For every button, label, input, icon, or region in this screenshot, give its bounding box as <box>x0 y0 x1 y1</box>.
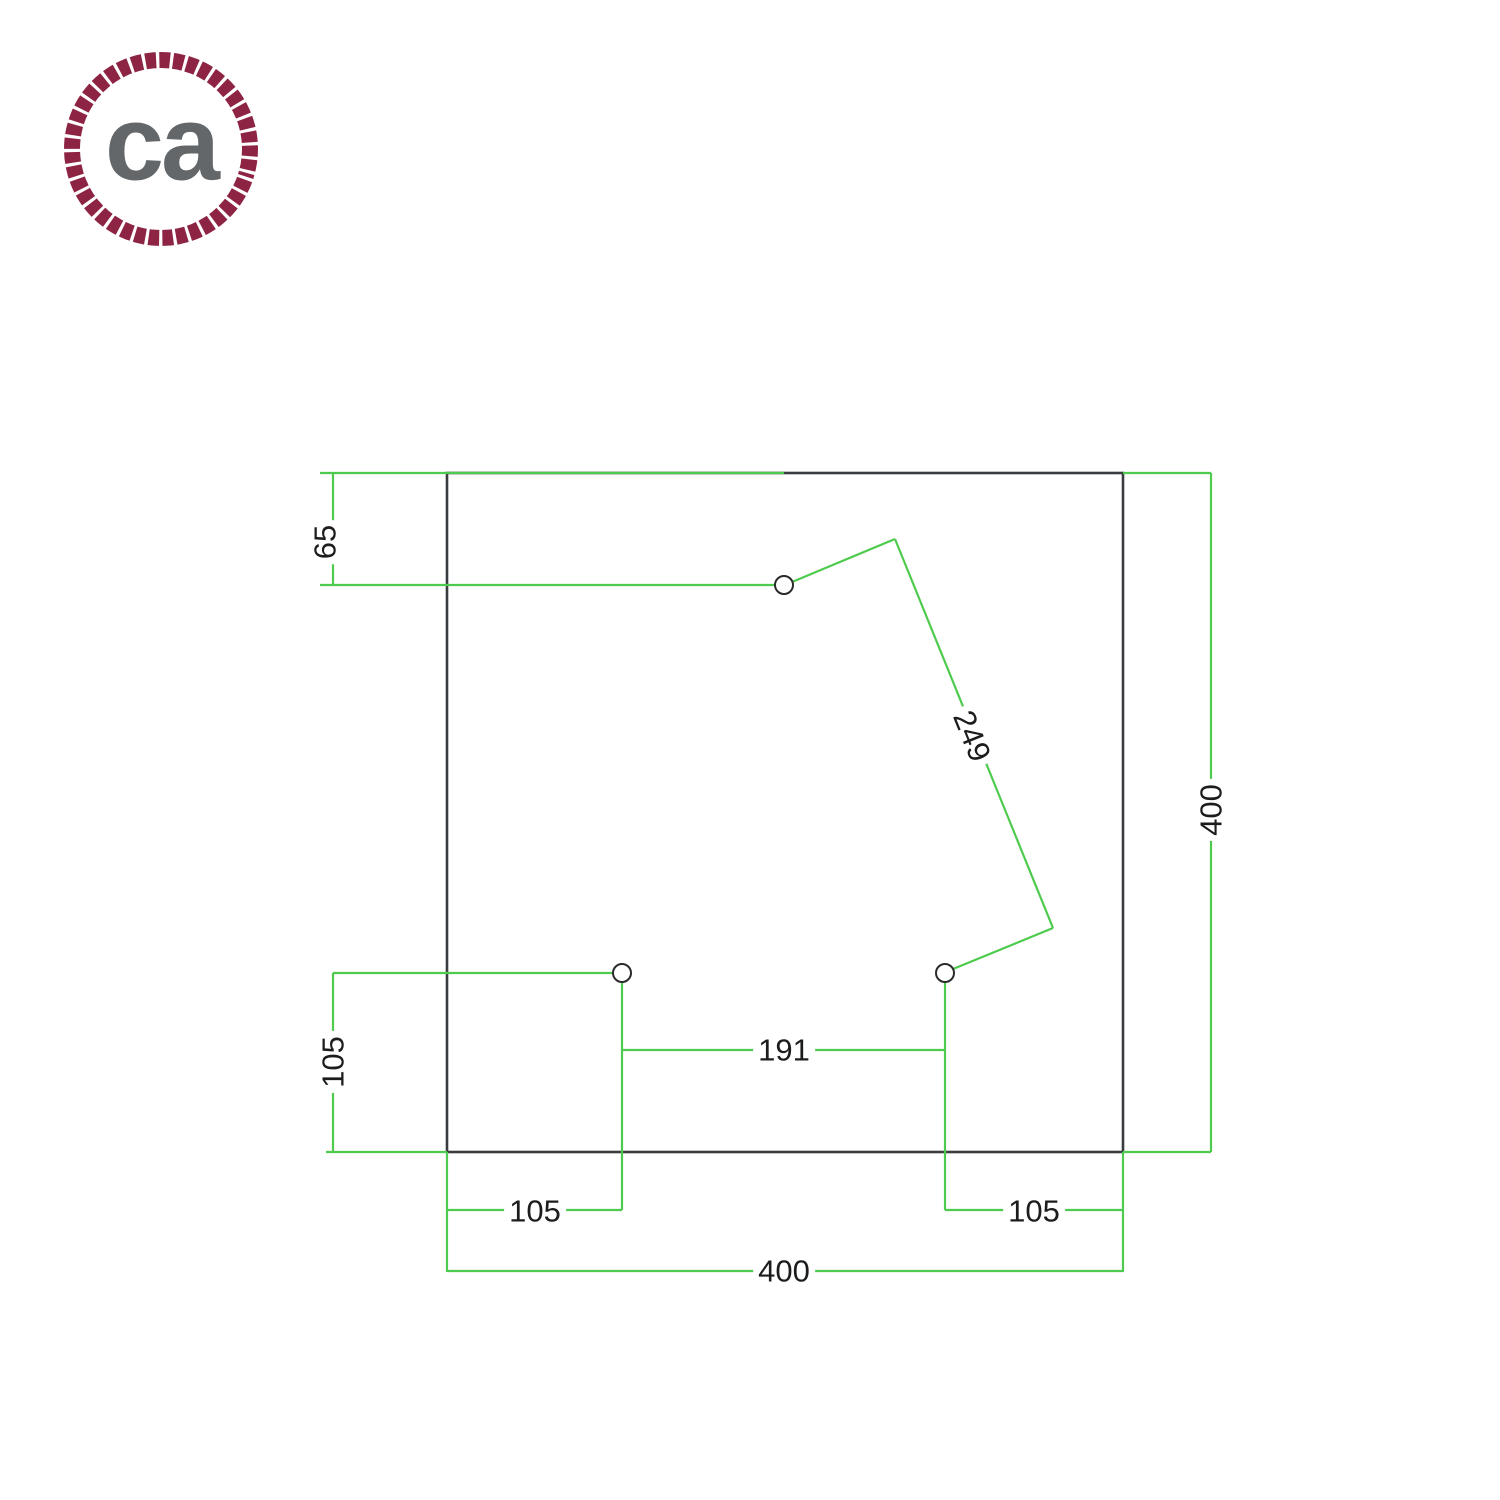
dim-label: 400 <box>1194 779 1229 841</box>
top-hole-icon <box>775 576 793 594</box>
dim-label: 400 <box>753 1254 815 1289</box>
dim-label: 191 <box>753 1033 815 1068</box>
dimension-line <box>953 928 1053 969</box>
dim-label: 65 <box>308 520 343 564</box>
dim-label: 105 <box>504 1194 566 1229</box>
dim-label: 105 <box>316 1031 351 1093</box>
dimension-line <box>792 539 895 582</box>
technical-drawing <box>0 0 1500 1500</box>
diagram-page: ca 65105400249191105105400 <box>0 0 1500 1500</box>
bottom-right-hole-icon <box>936 964 954 982</box>
bottom-left-hole-icon <box>613 964 631 982</box>
dim-label: 105 <box>1003 1194 1065 1229</box>
